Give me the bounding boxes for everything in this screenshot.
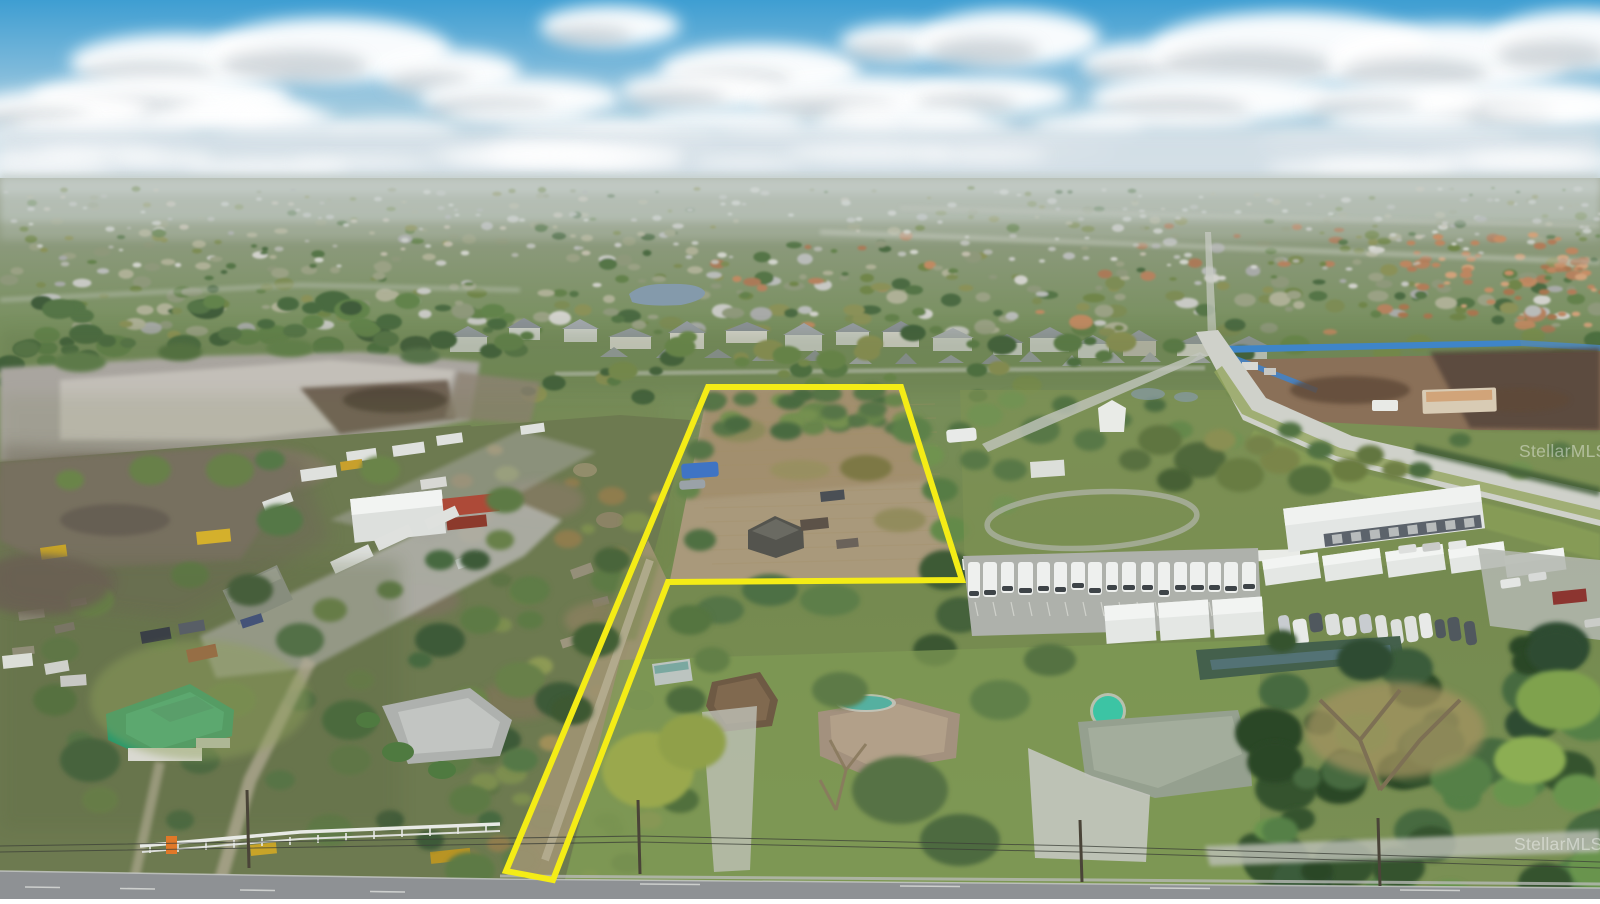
- svg-text:StellarMLS: StellarMLS: [1519, 441, 1600, 461]
- svg-text:StellarMLS: StellarMLS: [1514, 834, 1600, 854]
